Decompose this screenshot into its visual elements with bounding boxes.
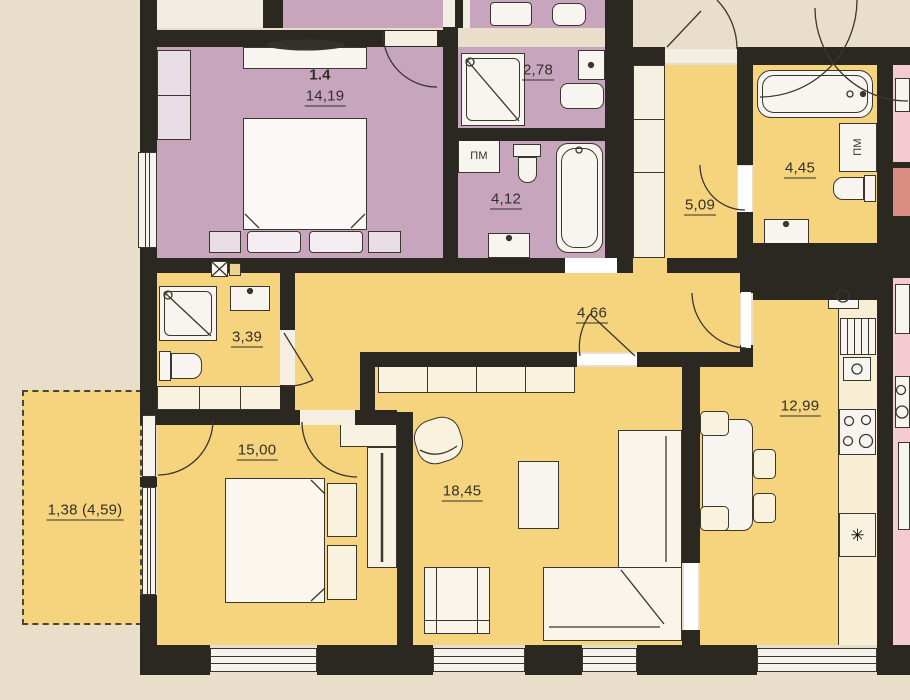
wall-segment <box>397 412 413 645</box>
wall-segment <box>737 212 753 258</box>
washing-machine <box>560 83 604 109</box>
nightstand <box>209 231 241 253</box>
area-label-shower-room: 3,39 <box>231 329 263 348</box>
wall-segment <box>605 0 633 270</box>
cabinet <box>895 284 910 334</box>
toilet-tank <box>513 144 541 157</box>
area-label-living: 18,45 <box>442 483 483 502</box>
window <box>582 648 637 672</box>
upper-floor-sliver <box>283 0 443 28</box>
door-opening <box>577 354 637 365</box>
wardrobe <box>367 447 397 568</box>
pillow <box>309 231 363 253</box>
wall-segment <box>355 410 397 425</box>
dish-dryer <box>840 318 876 355</box>
wall-segment <box>140 0 157 155</box>
wall-segment <box>877 65 893 645</box>
wall-segment <box>737 65 753 165</box>
kitchen-sink <box>843 357 871 381</box>
chair <box>753 493 776 523</box>
wall-segment <box>737 47 910 65</box>
entry-door-opening <box>665 49 737 63</box>
stove <box>839 409 876 455</box>
toilet-tank <box>159 351 171 381</box>
door-opening <box>684 563 698 630</box>
wall-segment <box>682 365 700 563</box>
cabinet <box>898 442 910 530</box>
floor-plan: ✳ <box>0 0 910 700</box>
wall-segment <box>455 0 463 28</box>
shower-cabin <box>461 53 525 126</box>
window <box>142 487 156 595</box>
wall-segment <box>682 630 700 645</box>
wall-segment <box>617 258 633 273</box>
wall-segment <box>280 385 295 410</box>
area-label-bedroom: 15,00 <box>237 442 278 461</box>
room-corridor-leg <box>295 352 360 412</box>
vent-box <box>229 263 241 276</box>
window <box>210 648 317 672</box>
wall-segment <box>140 393 157 415</box>
wall-segment <box>140 595 157 645</box>
wall-segment <box>633 47 665 65</box>
wall-segment <box>360 352 577 367</box>
wall-segment <box>637 645 757 675</box>
wall-segment <box>140 477 157 487</box>
washing-machine-label: ПМ <box>470 150 487 162</box>
door-leaf <box>738 166 752 212</box>
area-label-neighbor-bath: 4,12 <box>490 191 522 210</box>
chair <box>700 506 729 531</box>
wall-segment <box>360 362 375 412</box>
toilet-bowl <box>171 353 202 379</box>
door-opening <box>565 258 617 273</box>
toilet <box>552 3 586 26</box>
window <box>433 648 525 672</box>
shower-cabin <box>159 286 217 341</box>
bathtub <box>757 70 873 118</box>
cabinet-row <box>157 386 283 410</box>
sink <box>578 50 605 80</box>
area-label-bathroom: 4,45 <box>784 160 816 179</box>
fridge-symbol: ✳ <box>850 526 864 545</box>
area-label-kitchen: 12,99 <box>780 398 821 417</box>
toilet-bowl <box>833 177 864 200</box>
wall-segment <box>443 27 458 265</box>
stove <box>895 376 910 428</box>
wall-segment <box>877 645 910 675</box>
door-opening <box>280 330 295 385</box>
wall-segment <box>263 0 283 28</box>
wall-segment <box>455 128 605 141</box>
coffee-table <box>518 461 559 529</box>
door-leaf <box>741 292 751 348</box>
hall-threshold <box>633 258 667 273</box>
balcony-door-leaf <box>142 415 156 477</box>
pillow <box>327 545 357 600</box>
vent-shaft <box>211 261 228 277</box>
window <box>757 648 877 672</box>
wall-segment <box>893 162 910 168</box>
window <box>138 152 157 248</box>
upper-floor-sliver <box>157 0 263 28</box>
wall-segment <box>140 410 300 425</box>
area-label-balcony: 1,38 (4,59) <box>47 502 124 521</box>
chair <box>753 449 776 479</box>
area-label-hall: 5,09 <box>684 197 716 216</box>
pillow <box>327 483 357 537</box>
tv-dresser <box>243 47 367 69</box>
wall-segment <box>525 645 582 675</box>
sink <box>764 219 809 244</box>
wall-segment <box>280 273 295 330</box>
sink <box>895 78 910 112</box>
pillow <box>247 231 301 253</box>
wall-segment <box>893 216 910 278</box>
wardrobe <box>633 65 665 258</box>
sink <box>488 233 530 258</box>
wall-segment <box>753 243 893 300</box>
adjacent-unit <box>893 168 910 216</box>
wall-segment <box>740 270 753 293</box>
wall-segment <box>443 258 565 273</box>
wall-segment <box>140 258 455 273</box>
double-bed <box>243 118 367 230</box>
area-label-neighbor-bedroom: 14,19 <box>305 88 346 107</box>
door-opening <box>300 410 355 425</box>
toilet-tank <box>864 175 876 202</box>
bathtub <box>556 143 603 253</box>
fridge: ✳ <box>839 513 876 557</box>
corner-sofa <box>543 567 682 641</box>
wall-segment <box>317 645 433 675</box>
corner-sofa <box>618 430 682 568</box>
washing-machine-label: ПМ <box>852 138 864 155</box>
double-bed <box>225 478 325 603</box>
wall-segment <box>140 645 210 675</box>
armchair-square <box>424 567 490 634</box>
area-label-corridor: 4,66 <box>576 305 608 324</box>
chair <box>700 411 729 436</box>
room-corridor <box>295 273 740 352</box>
door-opening <box>385 31 437 46</box>
wardrobe <box>157 50 191 140</box>
toilet-bowl <box>518 157 537 183</box>
sink <box>230 286 270 311</box>
area-label-neighbor-shower: 2,78 <box>522 62 554 81</box>
nightstand <box>368 231 401 253</box>
neighbor-unit-label: 1.4 <box>309 67 330 84</box>
sink <box>490 2 532 26</box>
